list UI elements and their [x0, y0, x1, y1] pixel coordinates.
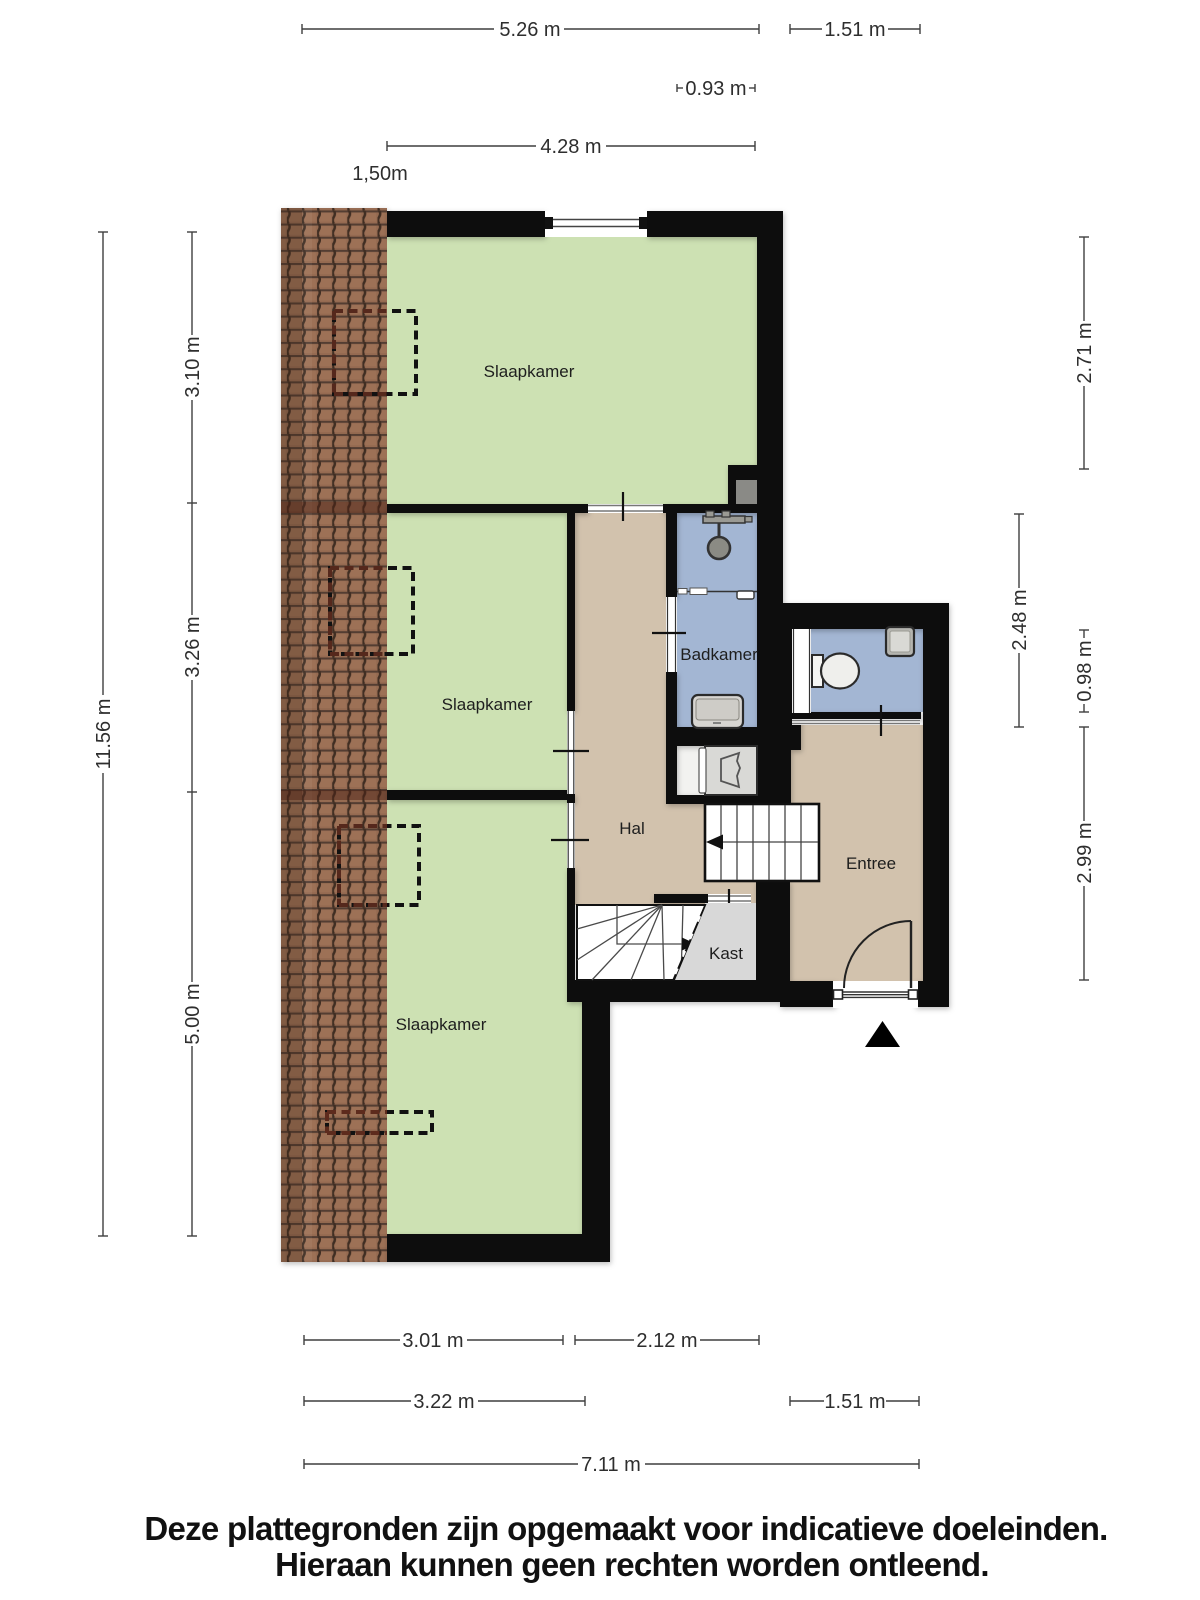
svg-text:0.93 m: 0.93 m: [685, 78, 746, 100]
svg-text:3.01 m: 3.01 m: [402, 1330, 463, 1352]
svg-text:2.48 m: 2.48 m: [1009, 589, 1031, 650]
svg-text:3.10 m: 3.10 m: [182, 336, 204, 397]
svg-text:Hieraan kunnen geen rechten wo: Hieraan kunnen geen rechten worden ontle…: [275, 1546, 989, 1583]
svg-text:11.56 m: 11.56 m: [93, 699, 115, 770]
svg-text:0.98 m: 0.98 m: [1074, 640, 1096, 701]
svg-text:1.51 m: 1.51 m: [824, 19, 885, 41]
svg-text:Kast: Kast: [709, 944, 743, 963]
svg-text:Hal: Hal: [619, 819, 645, 838]
svg-text:5.00 m: 5.00 m: [182, 983, 204, 1044]
svg-text:Slaapkamer: Slaapkamer: [396, 1015, 487, 1034]
svg-text:Slaapkamer: Slaapkamer: [442, 695, 533, 714]
svg-text:Entree: Entree: [846, 854, 896, 873]
svg-text:Slaapkamer: Slaapkamer: [484, 362, 575, 381]
svg-text:3.22 m: 3.22 m: [413, 1391, 474, 1413]
svg-text:2.71 m: 2.71 m: [1074, 322, 1096, 383]
svg-text:1.51 m: 1.51 m: [824, 1391, 885, 1413]
svg-text:2.99 m: 2.99 m: [1074, 822, 1096, 883]
svg-text:2.12 m: 2.12 m: [636, 1330, 697, 1352]
svg-text:7.11 m: 7.11 m: [581, 1454, 641, 1476]
svg-text:1,50m: 1,50m: [352, 163, 408, 185]
svg-text:3.26 m: 3.26 m: [182, 616, 204, 677]
svg-text:4.28 m: 4.28 m: [540, 136, 601, 158]
svg-text:Deze plattegronden zijn opgema: Deze plattegronden zijn opgemaakt voor i…: [144, 1510, 1107, 1547]
svg-text:5.26 m: 5.26 m: [499, 19, 560, 41]
svg-text:Badkamer: Badkamer: [680, 645, 758, 664]
